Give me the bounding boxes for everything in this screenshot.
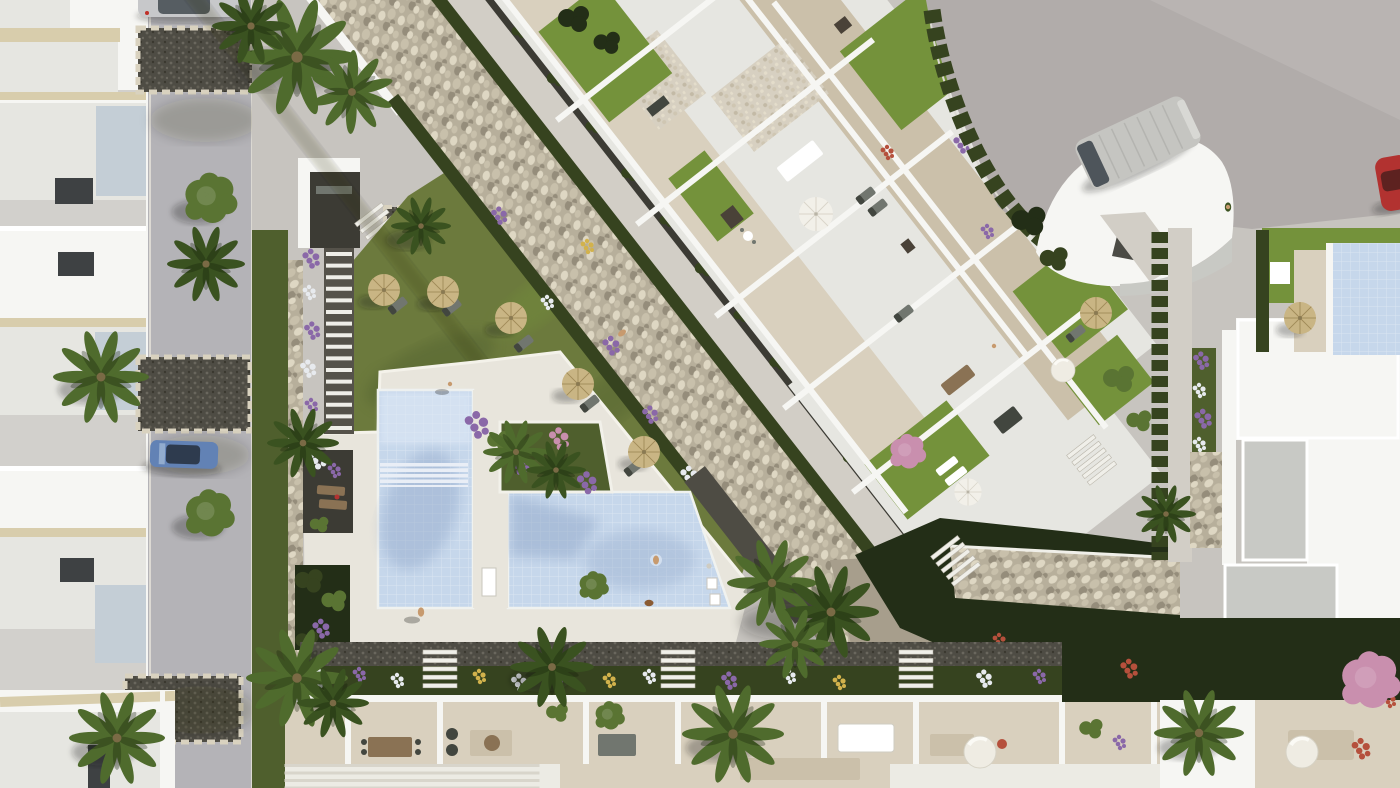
towel-cabinet <box>482 568 496 596</box>
stone-clad-wall <box>1190 452 1224 548</box>
dome-parasol <box>1286 736 1318 768</box>
swimmer <box>653 556 659 565</box>
person-walking <box>418 607 424 616</box>
straw-umbrella <box>427 276 459 308</box>
straw-umbrella <box>1284 302 1316 334</box>
roof-trim <box>0 28 120 42</box>
outdoor-shower <box>706 563 711 568</box>
straw-umbrella <box>495 302 527 334</box>
dome-parasol <box>964 736 996 768</box>
private-pool <box>1333 243 1400 355</box>
aerial-render-image <box>0 0 1400 788</box>
straw-umbrella <box>562 368 594 400</box>
dog <box>645 600 654 606</box>
straw-umbrella <box>1080 297 1112 329</box>
person-standing <box>447 379 453 388</box>
scene-svg <box>0 0 1400 788</box>
dining-table <box>368 737 412 757</box>
white-parasol <box>799 197 833 231</box>
straw-umbrella <box>368 274 400 306</box>
pedestrian <box>1225 202 1231 211</box>
dome-parasol <box>1051 358 1075 382</box>
blue-car <box>141 440 222 478</box>
white-parasol <box>954 478 981 505</box>
bbq <box>446 728 458 740</box>
long-table <box>740 758 860 780</box>
gravel-band <box>300 642 1090 668</box>
skylight-box <box>55 178 93 204</box>
hedge-pocket <box>295 565 350 651</box>
person-on-terrace <box>991 341 997 350</box>
straw-umbrella <box>628 436 660 468</box>
grey-roof <box>1243 440 1307 560</box>
